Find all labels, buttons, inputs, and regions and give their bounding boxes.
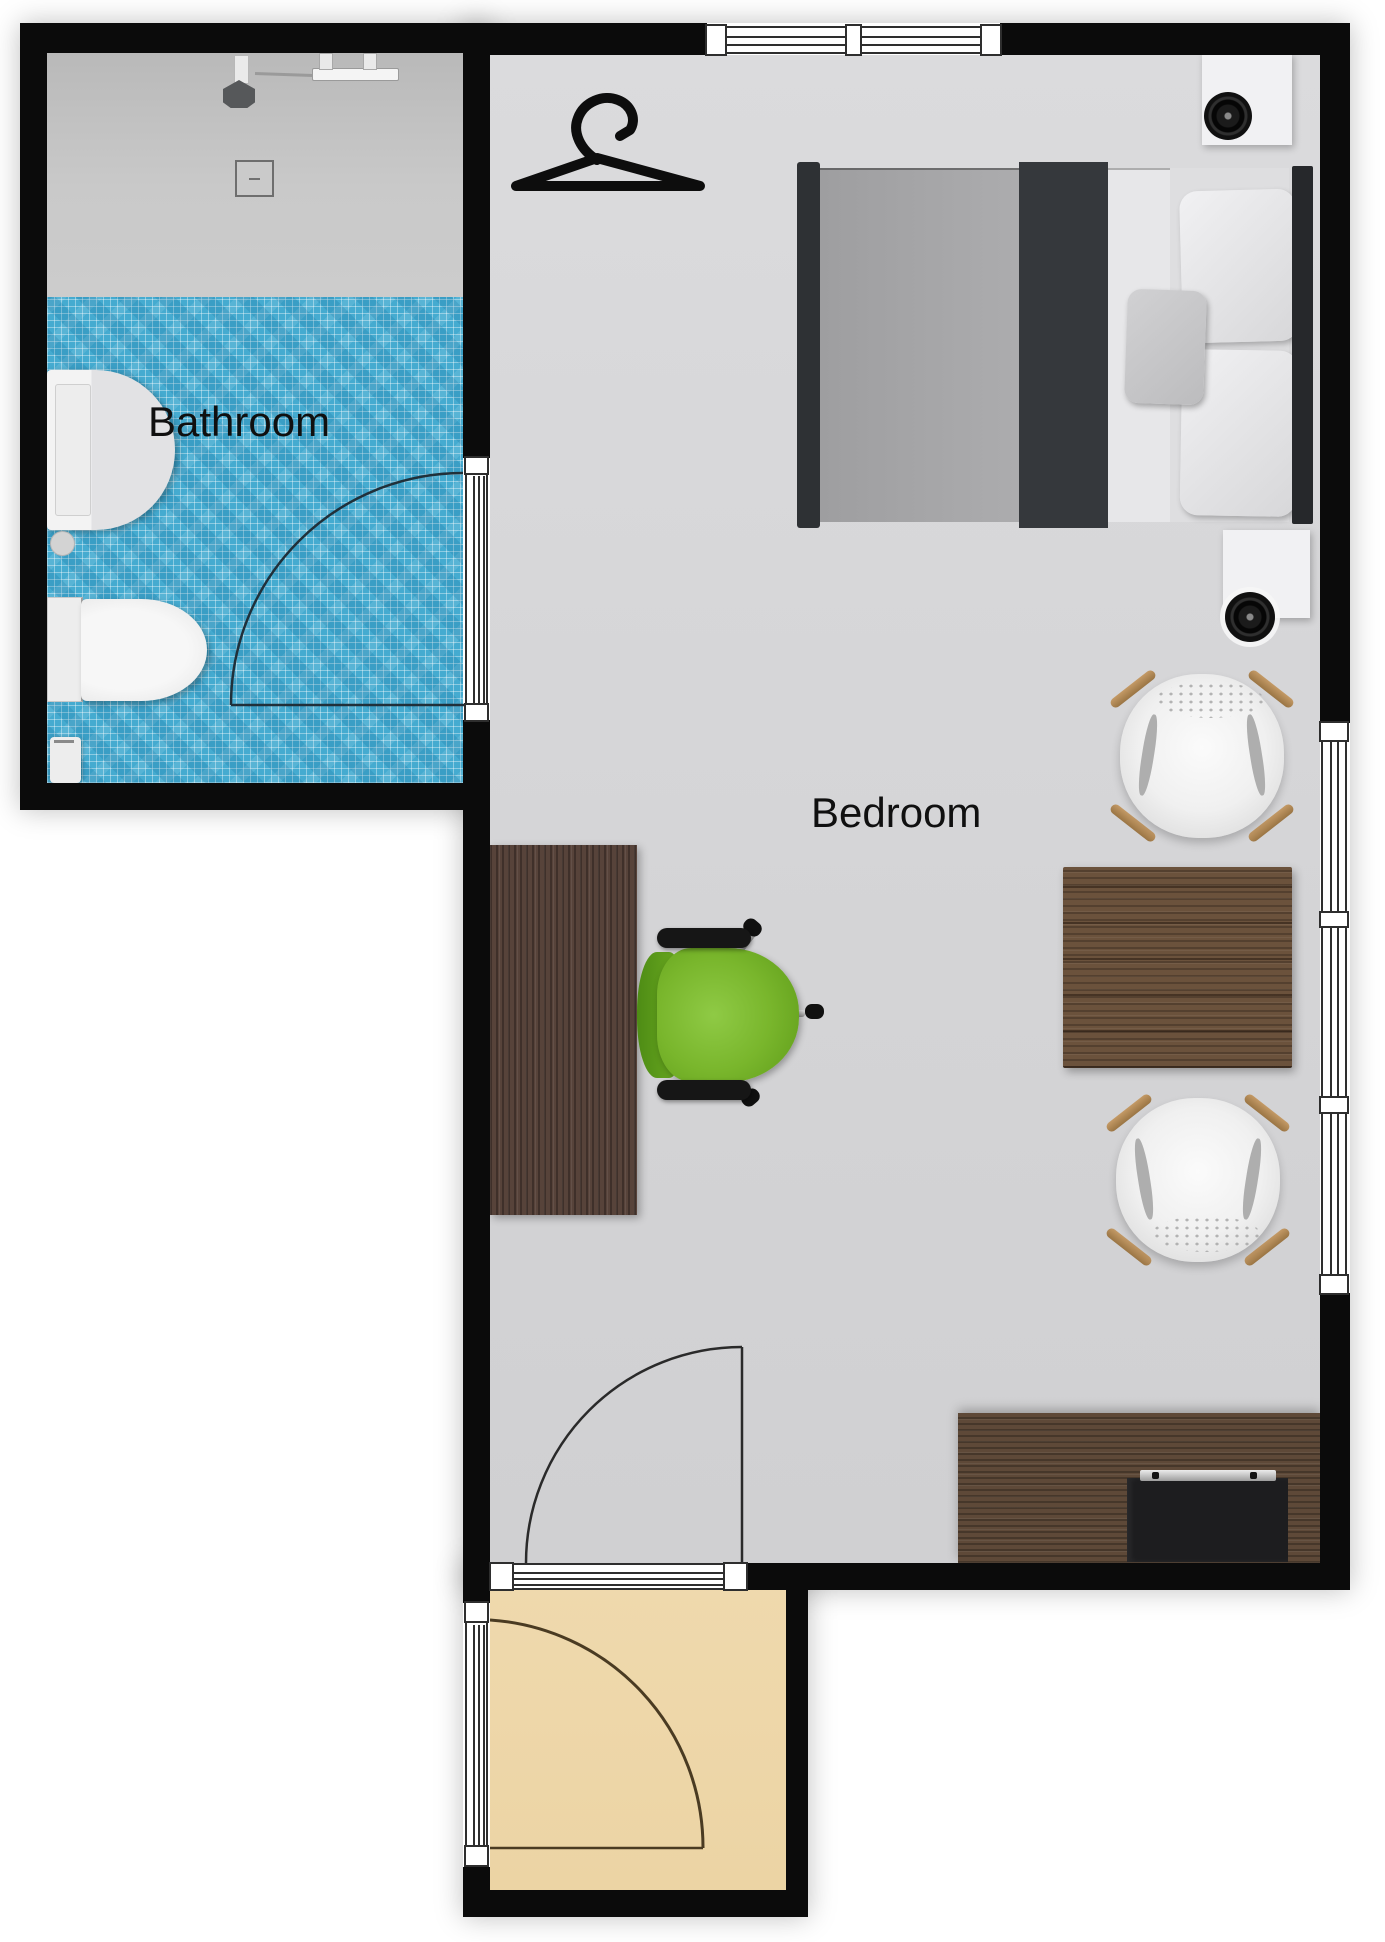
window-right — [1321, 723, 1347, 1293]
threshold-line — [512, 1572, 729, 1574]
wall-entry-right — [786, 1587, 808, 1917]
window-glazing-line — [473, 1625, 475, 1849]
bathroom-door-panel — [465, 458, 488, 720]
window-frame-block — [1319, 1274, 1349, 1295]
wall-bathroom-top — [20, 23, 490, 53]
door-frame-block — [464, 456, 489, 475]
window-mullion — [1319, 1096, 1349, 1114]
window-glazing-line — [483, 1625, 485, 1849]
bathroom-door-swing — [231, 473, 463, 705]
wall-bedroom-bottom — [747, 1563, 1350, 1590]
linework-overlay — [0, 0, 1385, 1942]
entry-door-swing — [490, 1620, 703, 1848]
wall-bottom-corner-block — [463, 1563, 490, 1590]
clothes-hanger-icon — [516, 98, 700, 186]
door-panel-line — [478, 476, 480, 706]
window-frame-block — [1319, 721, 1349, 742]
window-frame-block — [464, 1845, 489, 1867]
wall-bathroom-bottom — [20, 783, 490, 810]
wall-bedroom-right-lower — [1320, 1293, 1350, 1590]
window-frame-block — [705, 24, 727, 56]
wall-entry-bottom — [463, 1890, 808, 1917]
window-frame-block — [464, 1601, 489, 1623]
wall-bathroom-left — [20, 23, 47, 810]
door-panel-line — [473, 476, 475, 706]
wall-bedroom-top-left — [463, 23, 707, 55]
entry-window — [465, 1603, 488, 1867]
door-panel-line — [483, 476, 485, 706]
bedroom-door-swing — [526, 1347, 742, 1563]
window-glazing-line — [478, 1625, 480, 1849]
window-glazing-line — [1330, 725, 1332, 1291]
threshold-line — [512, 1584, 729, 1586]
bathroom-label: Bathroom — [148, 398, 330, 446]
bedroom-door-threshold — [490, 1563, 747, 1590]
wall-bedroom-top-right — [1000, 23, 1350, 55]
door-frame-block — [464, 703, 489, 722]
door-frame-block — [723, 1562, 748, 1591]
window-frame-block — [980, 24, 1002, 56]
window-mullion — [845, 24, 862, 56]
window-glazing-line — [1337, 725, 1339, 1291]
window-mullion — [1319, 911, 1349, 928]
wall-shared-lower — [463, 720, 490, 1563]
threshold-line — [512, 1578, 729, 1580]
wall-bedroom-right-upper — [1320, 23, 1350, 723]
bedroom-label: Bedroom — [811, 789, 981, 837]
door-frame-block — [489, 1562, 514, 1591]
wall-shared-upper — [463, 23, 490, 458]
floorplan-canvas: Bathroom Bedroom — [0, 0, 1385, 1942]
